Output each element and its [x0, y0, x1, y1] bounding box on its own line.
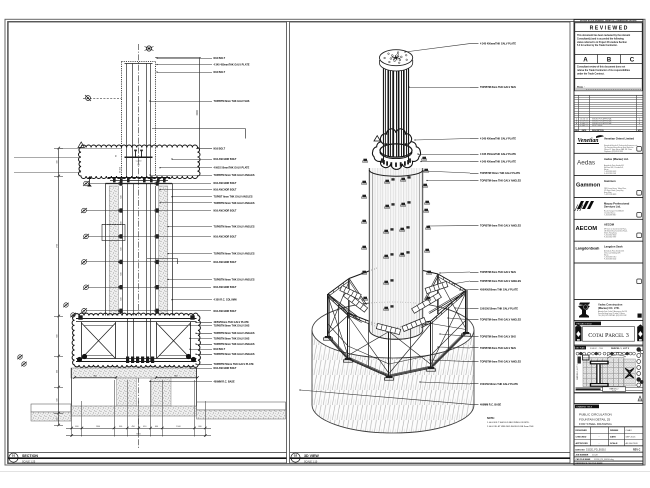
- svg-text:TOP/BTM 6mm THK GALV ANGLES: TOP/BTM 6mm THK GALV ANGLES: [214, 278, 255, 281]
- svg-text:1944: 1944: [176, 426, 180, 428]
- svg-text:CHAO: CHAO: [626, 429, 633, 432]
- svg-text:T +853 2878 9917: T +853 2878 9917: [604, 215, 616, 217]
- svg-text:SECTION: SECTION: [22, 454, 38, 458]
- svg-text:T +852 2516 8823: T +852 2516 8823: [604, 194, 616, 196]
- svg-text:TOP/BTM 8mm THK GALV ANGLES: TOP/BTM 8mm THK GALV ANGLES: [214, 332, 255, 335]
- svg-text:AECOM: AECOM: [604, 223, 615, 227]
- svg-text:TOP/BTM 6mm THK GALV ANGLES: TOP/BTM 6mm THK GALV ANGLES: [214, 226, 255, 229]
- svg-text:600: 600: [120, 221, 122, 224]
- svg-text:GOLF: GOLF: [612, 390, 616, 392]
- svg-text:CAD FILE NAME: CAD FILE NAME: [576, 458, 592, 461]
- svg-text:90: 90: [116, 155, 118, 157]
- svg-text:PARCEL 1, LOT 1: PARCEL 1, LOT 1: [576, 364, 579, 379]
- svg-text:150/150/10mm THK GALV PLATE: 150/150/10mm THK GALV PLATE: [480, 383, 518, 386]
- svg-text:1. ALL BOLT SHOULD BE FIXING O: 1. ALL BOLT SHOULD BE FIXING ON SITE.: [487, 421, 530, 424]
- svg-text:5.4 for action by the Trade Co: 5.4 for action by the Trade Contractor.: [577, 44, 618, 47]
- svg-text:China Law Building 16/F,: China Law Building 16/F,: [604, 253, 621, 255]
- svg-text:TOP/BTM 8mm THK GALV ANGLES: TOP/BTM 8mm THK GALV ANGLES: [214, 343, 255, 346]
- svg-text:400MM R.C. BASE: 400MM R.C. BASE: [214, 380, 236, 383]
- svg-text:DWG NO: DWG NO: [576, 449, 586, 451]
- svg-text:4 345 450mmTHK GALV PLATE: 4 345 450mmTHK GALV PLATE: [214, 64, 250, 67]
- svg-text:status referred to in Proj: status referred to in Project Procedure …: [577, 41, 628, 44]
- svg-text:1500: 1500: [196, 110, 199, 116]
- svg-text:TOP/BTM 8mm THK GALV SHS: TOP/BTM 8mm THK GALV SHS: [480, 347, 516, 350]
- svg-text:Consultant review of this: Consultant review of this document does …: [577, 66, 625, 69]
- svg-text:4 350 R.C. COLUMN: 4 350 R.C. COLUMN: [214, 299, 237, 302]
- svg-text:REFERENCE CAD FILE NAME: REFERENCE CAD FILE NAME: [576, 462, 604, 465]
- svg-text:2. ALL FILLET WELDED SHOULD BE: 2. ALL FILLET WELDED SHOULD BE 3mm THK.: [487, 425, 534, 428]
- svg-text:Aedas (Macau) Ltd.: Aedas (Macau) Ltd.: [604, 157, 629, 161]
- svg-text:AS SHOWN: AS SHOWN: [626, 442, 638, 445]
- svg-text:TOP/BTM 6mm THK GALV ANGLES: TOP/BTM 6mm THK GALV ANGLES: [480, 280, 521, 283]
- svg-text:28/F, Devon House, Taikoo Plac: 28/F, Devon House, Taikoo Place,: [604, 188, 627, 190]
- svg-text:DO NOT SCALE DRAWING. VERIFY A: DO NOT SCALE DRAWING. VERIFY ALL DIMENSI…: [580, 20, 637, 23]
- svg-text:TOP/BTM 8mm THK GALV SHS: TOP/BTM 8mm THK GALV SHS: [214, 100, 250, 103]
- svg-text:NOTE:: NOTE:: [487, 417, 495, 420]
- svg-text:FOR STEEL DRAWING: FOR STEEL DRAWING: [579, 422, 612, 426]
- svg-text:Macau: Macau: [604, 169, 609, 171]
- svg-text:!: !: [81, 144, 82, 148]
- svg-text:TOP/BTM 6mm THK GALV ANGLES: TOP/BTM 6mm THK GALV ANGLES: [480, 225, 521, 228]
- svg-text:Langdon Seah: Langdon Seah: [604, 245, 623, 249]
- svg-text:DRAWN: DRAWN: [610, 429, 619, 432]
- svg-text:01: 01: [12, 454, 16, 458]
- svg-text:TOP/BTM 8mm THK GALV SHS: TOP/BTM 8mm THK GALV SHS: [214, 324, 250, 327]
- svg-text:TOP/BTM 50mm THK GALV PLATE: TOP/BTM 50mm THK GALV PLATE: [480, 172, 520, 175]
- svg-text:Yadea Construction: Yadea Construction: [598, 303, 623, 307]
- svg-text:DATE: DATE: [610, 436, 616, 439]
- svg-text:F +853 2833 1102: F +853 2833 1102: [604, 173, 616, 175]
- svg-text:N16 BOLT: N16 BOLT: [214, 71, 226, 74]
- svg-text:600: 600: [120, 297, 122, 300]
- svg-text:T +853 2833 1022: T +853 2833 1022: [604, 171, 616, 173]
- svg-text:APPROVED: APPROVED: [576, 442, 589, 445]
- svg-text:TOP/BTM 8mm THK GALV SHS: TOP/BTM 8mm THK GALV SHS: [480, 335, 516, 338]
- svg-text:TOP/BTM 6mm THK GALV ANGLES: TOP/BTM 6mm THK GALV ANGLES: [480, 180, 521, 183]
- svg-text:TOP/BTM 6mm THK GALV ANGLES: TOP/BTM 6mm THK GALV ANGLES: [480, 361, 521, 364]
- svg-text:DRAWING TITLE: DRAWING TITLE: [577, 405, 593, 408]
- svg-text:N16 ANCHOR BOLT: N16 ANCHOR BOLT: [214, 367, 237, 370]
- svg-text:02: 02: [294, 454, 298, 458]
- svg-text:600: 600: [155, 426, 158, 428]
- svg-text:(A): (A): [137, 163, 140, 166]
- svg-text:Services Ltd.: Services Ltd.: [604, 205, 621, 209]
- svg-text:4 345 450mmTHK GALV PLATE: 4 345 450mmTHK GALV PLATE: [480, 138, 516, 141]
- svg-text:CHECKED: CHECKED: [576, 437, 587, 439]
- svg-text:FIRST ISSUE: FIRST ISSUE: [592, 125, 603, 127]
- svg-text:T +852 3922 9000: T +852 3922 9000: [604, 235, 616, 237]
- svg-text:Venetian Orient Limited: Venetian Orient Limited: [604, 137, 634, 141]
- svg-text:A: A: [583, 57, 588, 64]
- svg-text:SCALE: SCALE: [610, 442, 618, 445]
- svg-text:4 345 450mmTHK GALV PLATE: 4 345 450mmTHK GALV PLATE: [480, 161, 516, 164]
- svg-text:DESIGNED: DESIGNED: [576, 430, 588, 432]
- svg-text:600: 600: [120, 247, 122, 250]
- svg-text:06 MAY '15: 06 MAY '15: [580, 124, 589, 127]
- svg-text:KEY PLAN: KEY PLAN: [576, 347, 585, 350]
- svg-text:N16 ANCHOR BOLT: N16 ANCHOR BOLT: [214, 182, 237, 185]
- svg-text:800: 800: [57, 334, 59, 337]
- svg-text:Gammon: Gammon: [576, 183, 601, 189]
- svg-text:N16 ANCHOR BOLT: N16 ANCHOR BOLT: [214, 286, 237, 289]
- svg-text:300: 300: [57, 160, 59, 163]
- svg-text:600: 600: [198, 426, 201, 428]
- svg-text:TOP/BTM 6mm THK GALV ANGLES: TOP/BTM 6mm THK GALV ANGLES: [214, 174, 255, 177]
- svg-text:N16 BOLT: N16 BOLT: [214, 348, 226, 351]
- svg-text:R E V I E W E D: R E V I E W E D: [590, 25, 628, 31]
- svg-text:250: 250: [57, 417, 59, 420]
- svg-text:PARCEL 1, LOT 2: PARCEL 1, LOT 2: [611, 347, 630, 350]
- svg-text:450: 450: [131, 426, 134, 428]
- svg-text:N16 BOLT: N16 BOLT: [214, 57, 226, 60]
- svg-text:under the Trade Contract.: under the Trade Contract.: [577, 72, 605, 75]
- svg-text:PUBLIC CIRCULATION: PUBLIC CIRCULATION: [579, 413, 612, 417]
- svg-text:LangdonSeah: LangdonSeah: [576, 247, 600, 251]
- svg-text:600: 600: [75, 426, 78, 428]
- svg-text:B: B: [607, 57, 612, 64]
- svg-text:600: 600: [120, 195, 122, 198]
- svg-text:relieve the Trade Contracto: relieve the Trade Contractor of its resp…: [577, 69, 631, 72]
- svg-text:150/150/10mm THK GALV PLATE: 150/150/10mm THK GALV PLATE: [480, 308, 518, 311]
- svg-text:SCALE 1 : 7500: SCALE 1 : 7500: [590, 347, 603, 350]
- svg-text:SEP 2015: SEP 2015: [626, 437, 637, 439]
- svg-text:90 300: 90 300: [120, 167, 122, 173]
- svg-text:Macau: Macau: [604, 255, 609, 257]
- svg-text:TOP/BTM 6mm THK GALV ANGLES: TOP/BTM 6mm THK GALV ANGLES: [480, 319, 521, 322]
- svg-text:450: 450: [143, 426, 146, 428]
- svg-text:TOP/BTM 8mm THK GALV SHS: TOP/BTM 8mm THK GALV SHS: [480, 271, 516, 274]
- svg-text:2700: 2700: [57, 244, 59, 248]
- svg-text:Gammon: Gammon: [604, 179, 616, 183]
- svg-text:600: 600: [120, 272, 122, 275]
- svg-text:500: 500: [57, 398, 59, 401]
- svg-text:4 345 450mmTHK GALV PLATE: 4 345 450mmTHK GALV PLATE: [480, 43, 516, 46]
- svg-text:N16 ANCHOR BOLT: N16 ANCHOR BOLT: [214, 261, 237, 264]
- svg-text:SCALE 1:10: SCALE 1:10: [304, 460, 318, 463]
- svg-text:F +853 2833 1532: F +853 2833 1532: [604, 259, 616, 261]
- svg-text:PARCEL 2: PARCEL 2: [610, 387, 619, 390]
- svg-text:Hong Kong: Hong Kong: [604, 192, 612, 194]
- svg-text:TOP/BTM 50mm THK GALV PLATE: TOP/BTM 50mm THK GALV PLATE: [214, 363, 254, 366]
- svg-text:TOP/BTM 8mm THK GALV ANGLES: TOP/BTM 8mm THK GALV ANGLES: [214, 353, 255, 356]
- svg-text:TOP/BT 6mm THK GALV ANGLES: TOP/BT 6mm THK GALV ANGLES: [214, 196, 253, 199]
- svg-text:N16 BOLT: N16 BOLT: [214, 148, 226, 151]
- svg-text:N16 ANCHOR BOLT: N16 ANCHOR BOLT: [214, 235, 237, 238]
- svg-text:Aedas: Aedas: [577, 160, 595, 167]
- svg-text:600: 600: [119, 426, 122, 428]
- svg-text:JOB NUMBER: JOB NUMBER: [576, 455, 589, 457]
- svg-text:N16 ANCHOR BOLT: N16 ANCHOR BOLT: [214, 158, 237, 161]
- svg-text:N16 ANCHOR BOLT: N16 ANCHOR BOLT: [214, 210, 237, 213]
- svg-text:5152E_PD_E6010.dwg: 5152E_PD_E6010.dwg: [594, 459, 614, 461]
- svg-text:AECOM: AECOM: [576, 226, 598, 232]
- svg-text:3D VIEW: 3D VIEW: [304, 454, 319, 458]
- svg-text:F +852 3922 9797: F +852 3922 9797: [604, 237, 616, 239]
- svg-text:600: 600: [57, 370, 59, 373]
- svg-text:Praca Kin Heng Long, 21 andar: Praca Kin Heng Long, 21 andar O, Macau: [598, 313, 625, 315]
- svg-text:This document has been reviewe: This document has been reviewed by the r…: [577, 34, 630, 37]
- svg-text:400MM R.C. BASE: 400MM R.C. BASE: [480, 403, 502, 406]
- svg-text:4 NOS 50mmTHK GALV PLATE: 4 NOS 50mmTHK GALV PLATE: [214, 167, 250, 170]
- svg-text:5152E_PD_E6010: 5152E_PD_E6010: [586, 448, 606, 451]
- svg-text:FOUNTAIN DETAIL 25: FOUNTAIN DETAIL 25: [579, 417, 611, 421]
- svg-text:T +853 2833 1710: T +853 2833 1710: [604, 257, 616, 259]
- svg-text:8094: 8094: [136, 434, 140, 436]
- svg-text:4 345 450mmTHK GALV PLATE: 4 345 450mmTHK GALV PLATE: [480, 153, 516, 156]
- svg-text:SCALE 1:25: SCALE 1:25: [22, 460, 36, 463]
- svg-text:1944: 1944: [96, 426, 100, 428]
- svg-text:N16 ANCHOR BOLT: N16 ANCHOR BOLT: [214, 189, 237, 192]
- svg-text:C: C: [630, 57, 635, 64]
- svg-text:Telephone: (853) 8118 2888: Telephone: (853) 8118 2888: [604, 151, 623, 153]
- svg-text:(Macau) CO. LTD.: (Macau) CO. LTD.: [598, 306, 620, 310]
- svg-text:Consultant(s) and is accord: Consultant(s) and is accorded the follow…: [577, 37, 624, 40]
- svg-text:TOP/BTM 8mm THK GALV SHS: TOP/BTM 8mm THK GALV SHS: [214, 337, 250, 340]
- svg-text:TOP/BTM 6mm THK GALV ANGLES: TOP/BTM 6mm THK GALV ANGLES: [214, 253, 255, 256]
- svg-text:COTAI PARCEL 3: COTAI PARCEL 3: [588, 332, 629, 339]
- svg-text:N16 ANCHOR BOLT: N16 ANCHOR BOLT: [214, 310, 237, 313]
- svg-text:TOP/BTM 8mm THK GALV SHS: TOP/BTM 8mm THK GALV SHS: [480, 86, 516, 89]
- svg-text:REV C: REV C: [633, 448, 641, 451]
- svg-text:TOP/BTM 6mm THK GALV ANGLES: TOP/BTM 6mm THK GALV ANGLES: [214, 202, 255, 205]
- svg-text:L=150: L=150: [136, 161, 143, 163]
- svg-text:450/450/50mm THK GALV PLATE: 450/450/50mm THK GALV PLATE: [480, 289, 518, 292]
- svg-text:5152E: 5152E: [592, 455, 598, 457]
